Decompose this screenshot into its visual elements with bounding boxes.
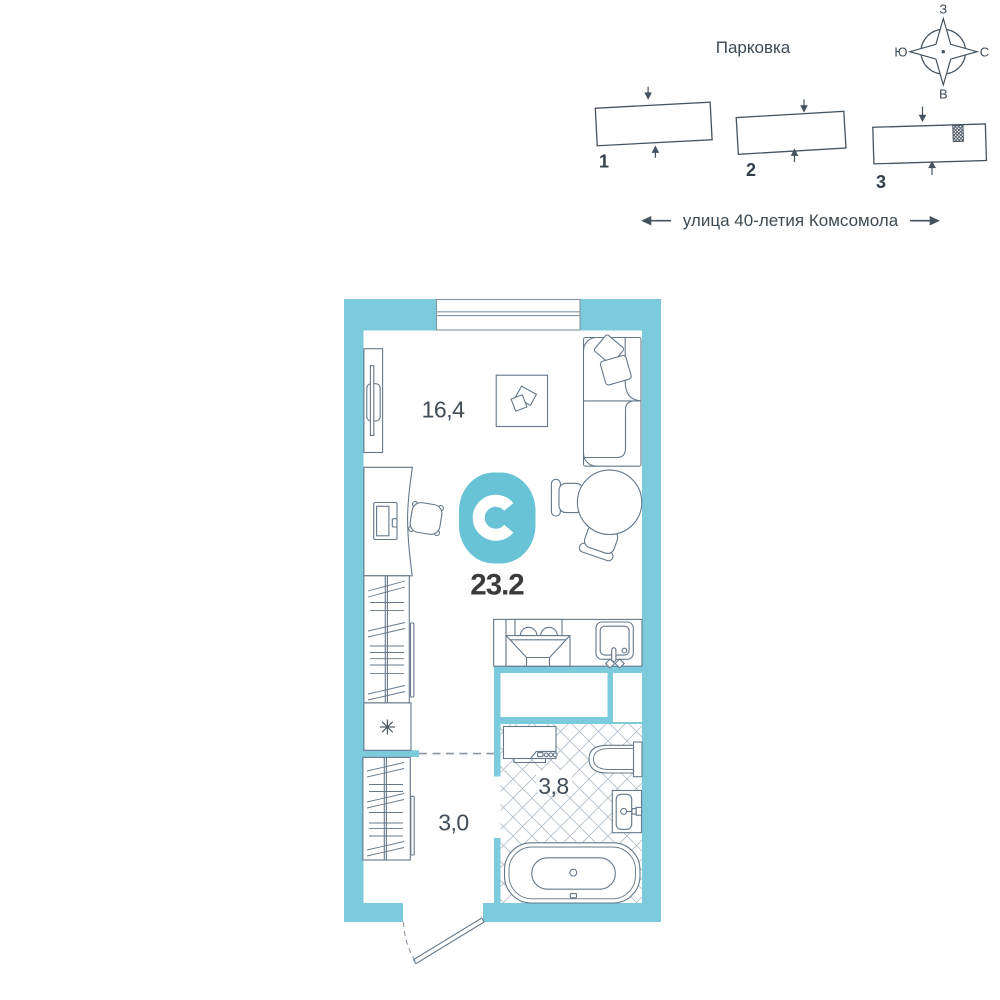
- svg-text:В: В: [939, 87, 948, 102]
- svg-text:Ю: Ю: [894, 45, 907, 60]
- svg-text:1: 1: [599, 152, 609, 172]
- svg-text:23.2: 23.2: [470, 569, 524, 602]
- svg-text:16,4: 16,4: [422, 397, 465, 423]
- svg-text:улица 40-летия Комсомола: улица 40-летия Комсомола: [683, 211, 899, 230]
- svg-text:2: 2: [746, 160, 756, 180]
- svg-text:3,0: 3,0: [438, 810, 468, 836]
- svg-text:Парковка: Парковка: [716, 38, 791, 57]
- svg-text:С: С: [980, 45, 989, 60]
- svg-text:3: 3: [876, 172, 886, 192]
- svg-text:З: З: [939, 2, 947, 17]
- svg-text:3,8: 3,8: [538, 773, 568, 799]
